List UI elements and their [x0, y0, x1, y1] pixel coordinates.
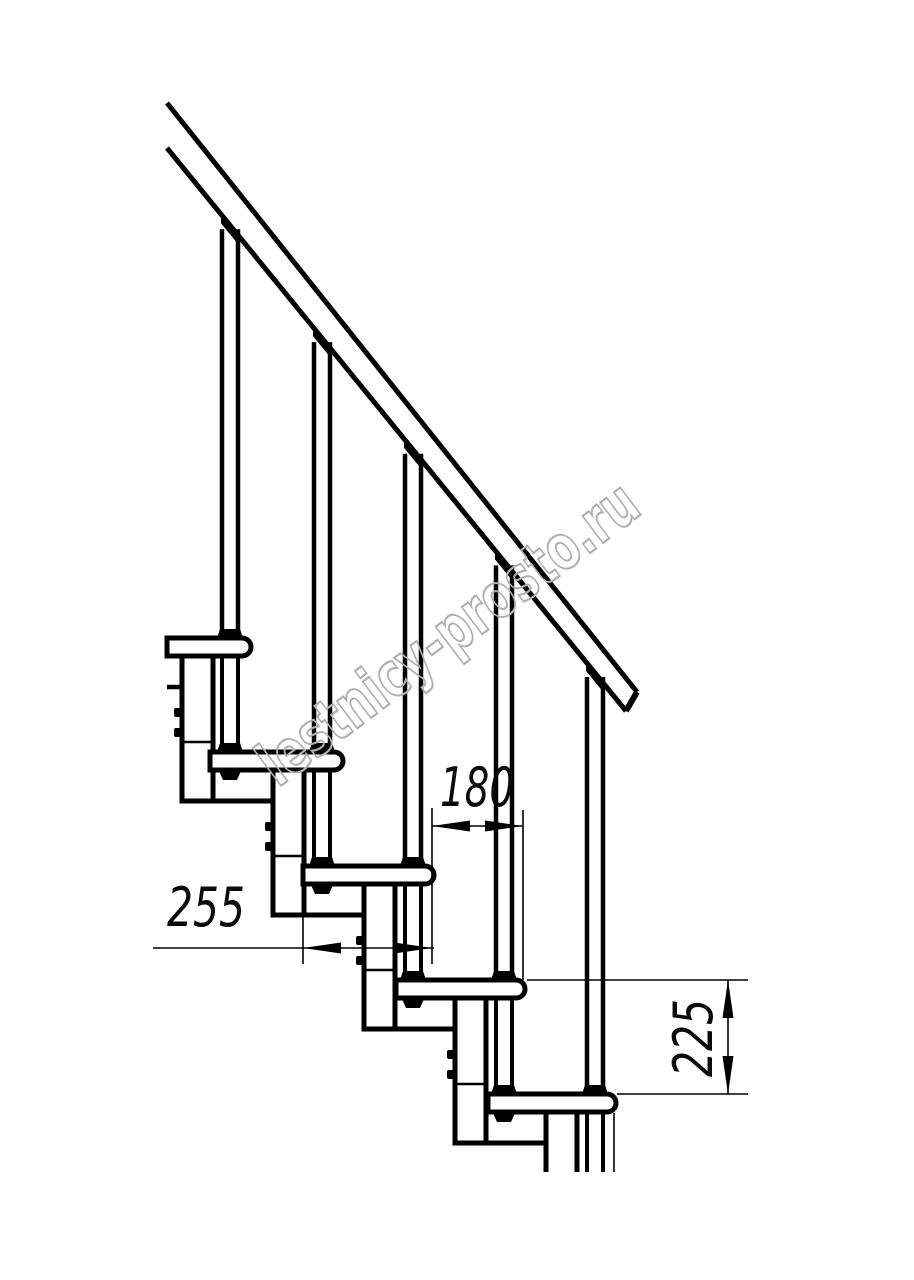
- rod-nut: [493, 1113, 515, 1122]
- support-column: [364, 884, 395, 1029]
- support-column: [455, 998, 486, 1143]
- dimension-arrow: [432, 821, 470, 832]
- rod-nut: [219, 771, 241, 780]
- column-bolt: [356, 936, 366, 945]
- baluster-tread-connector: [491, 971, 517, 980]
- column-bolt: [174, 728, 184, 737]
- column-bolt: [174, 708, 184, 717]
- rod-foot-connector: [491, 1085, 517, 1094]
- drawing-canvas: 180 255 225 lestnicy-prosto.ru: [0, 0, 914, 1280]
- support-column: [182, 656, 213, 801]
- tread: [488, 1094, 616, 1112]
- tread: [167, 638, 251, 656]
- baluster-tread-connector: [217, 629, 243, 638]
- dimension-label-going: 180: [440, 756, 514, 819]
- column-bolt: [447, 1070, 457, 1079]
- rod-foot-connector: [217, 743, 243, 752]
- tread: [396, 980, 525, 998]
- rod-foot-connector: [309, 857, 335, 866]
- staircase-technical-drawing: 180 255 225 lestnicy-prosto.ru: [0, 0, 914, 1280]
- column-bolt: [265, 842, 275, 851]
- dimension-arrow: [485, 821, 523, 832]
- dimension-annotations: 180 255 225: [153, 756, 748, 1172]
- rod-foot-connector: [400, 971, 426, 980]
- rod-nut: [402, 999, 424, 1008]
- dimension-arrow: [303, 943, 341, 954]
- handrail-end-cap: [626, 692, 637, 711]
- baluster-tread-connector: [400, 857, 426, 866]
- column-bolt: [447, 1050, 457, 1059]
- dimension-arrow: [394, 943, 432, 954]
- dimension-label-rise: 225: [662, 999, 725, 1077]
- rod-nut: [311, 885, 333, 894]
- baluster-tread-connector: [582, 1085, 608, 1094]
- column-bolt: [356, 956, 366, 965]
- tread: [303, 866, 434, 884]
- column-bolt: [265, 822, 275, 831]
- dimension-label-tread-depth: 255: [167, 876, 245, 939]
